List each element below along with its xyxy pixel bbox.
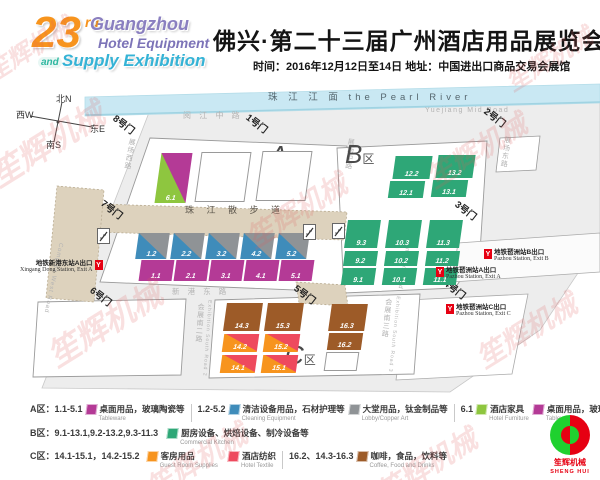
road-complex-west: Complex West Road [43, 242, 64, 314]
legend-divider [454, 404, 455, 422]
booth-12-1: 12.1 [388, 181, 425, 198]
booth-14-1: 14.1 [220, 355, 258, 373]
compass-west: 西W [16, 108, 34, 121]
booth-1-2: 1.2 [135, 233, 170, 259]
legend-item: 厨房设备、烘焙设备、制冷设备等 Commercial Kitchen [167, 428, 309, 446]
booth-12-2: 12.2 [392, 156, 432, 179]
legend-range: 16.2、14.3-16.3 [289, 451, 354, 462]
legend-range: B区：9.1-13.1,9.2-13.2,9.3-11.3 [30, 428, 158, 439]
legend-item: 客房用品 Guest Room Supplies [147, 451, 218, 469]
booth-4-1: 4.1 [244, 260, 280, 281]
legend-item: 酒店家具 Hotel Furniture [476, 404, 529, 422]
legend-row-b: B区：9.1-13.1,9.2-13.2,9.3-11.3 厨房设备、烘焙设备、… [30, 428, 313, 446]
booth-3-2: 3.2 [205, 233, 240, 259]
gate-8: 8号门 [110, 111, 138, 137]
metro-icon: Y [484, 249, 492, 259]
company-name: 笙辉机械 [544, 459, 596, 467]
booth-10-3: 10.3 [385, 220, 422, 248]
header: 23 rd Guangzhou Hotel Equipment and Supp… [0, 0, 600, 84]
booth-10-1: 10.1 [382, 268, 417, 285]
legend-range: A区：1.1-5.1 [30, 404, 83, 415]
river-label: 珠 江 江 面 the Pearl River [268, 89, 471, 103]
road-yuejiang-zh: 阅 江 中 路 [183, 110, 243, 121]
booth-5-1: 5.1 [279, 260, 315, 281]
poster-title: 佛兴·第二十三届广州酒店用品展览会 [213, 22, 600, 56]
booth-13-1: 13.1 [431, 180, 468, 197]
legend-row-c: C区：14.1-15.1，14.2-15.2 客房用品 Guest Room S… [30, 451, 451, 469]
company-logo [548, 413, 592, 457]
color-chip-magenta [85, 404, 98, 415]
legend-item: 清洁设备用品，石材护理等 Cleaning Equipment [229, 404, 345, 422]
booth-9-2: 9.2 [343, 251, 378, 266]
compass-north: 北N [56, 92, 72, 105]
logo-city: Guangzhou [90, 14, 189, 35]
metro-icon: Y [95, 260, 103, 270]
booth-empty-a1 [194, 152, 251, 202]
road-east-vertical: 展场东路 [498, 135, 512, 168]
poster-date-venue: 时间：2016年12月12日至14日 地址：中国进出口商品交易会展馆 [253, 58, 570, 74]
metro-icon: Y [446, 304, 454, 314]
color-chip-gray [348, 404, 361, 415]
legend-divider [191, 404, 192, 422]
color-chip-green [166, 428, 179, 439]
logo-line2: Hotel Equipment [98, 35, 209, 51]
metro-exit-pazhou-b: Y 地铁琶洲站B出口 Pazhou Station, Exit B [484, 249, 549, 263]
logo-and: and [38, 57, 62, 68]
road-west-vertical: 展场西路 [121, 137, 136, 170]
metro-icon: Y [436, 267, 444, 277]
exhibition-map-poster: 23 rd Guangzhou Hotel Equipment and Supp… [0, 0, 600, 480]
booth-14-3: 14.3 [223, 303, 263, 331]
booth-14-2: 14.2 [222, 334, 260, 352]
legend: A区：1.1-5.1 桌面用品，玻璃陶瓷等 Tableware 1.2-5.2 … [0, 396, 600, 480]
logo-line3: Supply Exhibition [62, 51, 206, 71]
escalator-icon [97, 228, 110, 244]
booth-empty-a2 [255, 151, 312, 201]
legend-item: 咖啡，食品，饮料等 Coffee, Food and Drinks [357, 451, 448, 469]
legend-item: 酒店纺织 Hotel Textile [228, 451, 276, 469]
booth-9-3: 9.3 [344, 220, 381, 248]
company-name-en: SHENG HUI [544, 469, 596, 475]
color-chip-blue [228, 404, 241, 415]
booth-9-1: 9.1 [341, 268, 376, 285]
color-chip-red [227, 451, 240, 462]
gate-1: 1号门 [243, 110, 271, 136]
gate-6: 6号门 [87, 283, 115, 309]
metro-exit-pazhou-c: Y 地铁琶洲站C出口 Pazhou Station, Exit C [446, 304, 511, 318]
color-chip-orange [146, 451, 159, 462]
booth-15-3: 15.3 [264, 303, 304, 331]
booth-empty-c [324, 352, 360, 371]
booth-16-2: 16.2 [327, 333, 363, 350]
legend-item: 大堂用品，钛金制品等 Lobby/Copper Art [349, 404, 448, 422]
escalator-icon [303, 224, 316, 240]
compass-south: 南S [46, 138, 61, 151]
metro-exit-pazhou-a: Y 地铁琶洲站A出口 Pazhou Station, Exit A [436, 267, 501, 281]
legend-range: C区：14.1-15.1，14.2-15.2 [30, 451, 140, 462]
escalator-icon [332, 223, 345, 239]
road-promenade-label: 珠 江 散 步 道 [185, 203, 285, 216]
road-xingang: 新 港 东 路 [172, 286, 229, 297]
booth-6-1: 6.1 [154, 153, 192, 203]
booth-15-1: 15.1 [261, 355, 299, 373]
booth-15-2: 15.2 [263, 334, 301, 352]
color-chip-magenta [532, 404, 545, 415]
booth-16-3: 16.3 [328, 304, 368, 331]
booth-13-2: 13.2 [435, 155, 475, 178]
color-chip-brown [356, 451, 369, 462]
legend-item: 桌面用品，玻璃陶瓷等 Tableware [86, 404, 185, 422]
color-chip-lime [475, 404, 488, 415]
booth-3-1: 3.1 [209, 260, 245, 281]
legend-range: 6.1 [461, 404, 474, 415]
booth-2-1: 2.1 [174, 260, 210, 281]
booth-1-1: 1.1 [139, 260, 175, 281]
zone-b-label: B区 [345, 139, 374, 170]
booth-2-2: 2.2 [170, 233, 205, 259]
metro-exit-xingang-a: 地铁新港东站A出口 Xingang Dong Station, Exit A Y [20, 260, 103, 274]
gate-7: 7号门 [98, 196, 126, 222]
booth-11-3: 11.3 [426, 220, 463, 248]
legend-row-a: A区：1.1-5.1 桌面用品，玻璃陶瓷等 Tableware 1.2-5.2 … [30, 404, 600, 422]
legend-divider [282, 451, 283, 469]
booth-10-2: 10.2 [384, 251, 419, 266]
compass-east: 东E [90, 122, 105, 135]
booth-11-2: 11.2 [425, 251, 460, 266]
booth-4-2: 4.2 [240, 233, 275, 259]
legend-range: 1.2-5.2 [198, 404, 226, 415]
